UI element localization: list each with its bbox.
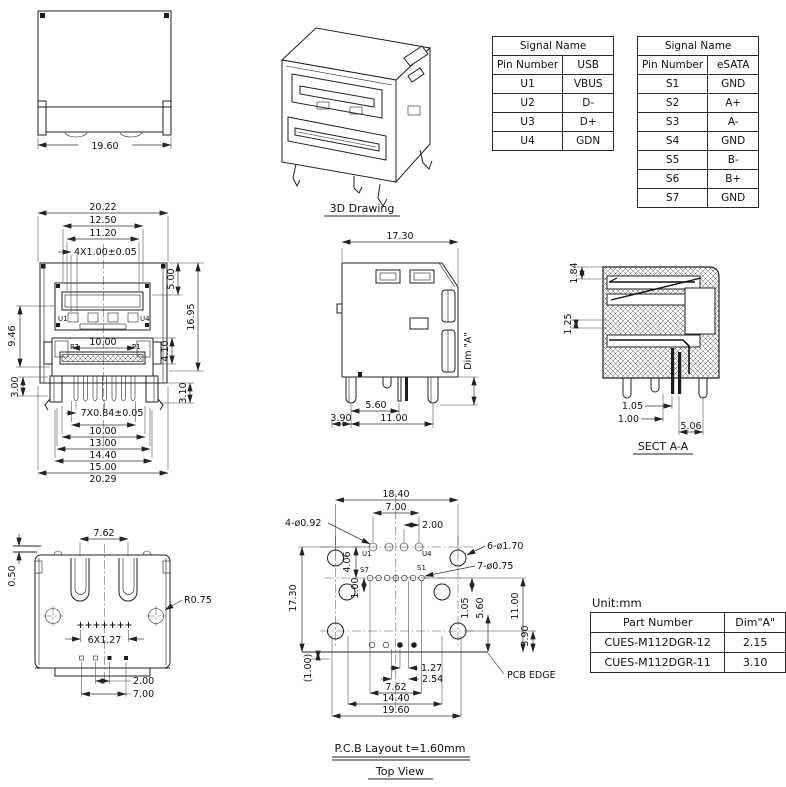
dim-105-pcb: 1.05 bbox=[460, 597, 471, 618]
dim-100-sect: 1.00 bbox=[618, 414, 639, 425]
sect-label: SECT A-A bbox=[633, 440, 693, 454]
dim-762-pcb: 7.62 bbox=[385, 682, 406, 693]
dim-1440: 14.40 bbox=[89, 450, 116, 461]
label-7-holes: 7-ø0.75 bbox=[477, 561, 513, 572]
engineering-drawing-sheet: 19.60 3D D bbox=[0, 0, 786, 787]
top-view: 19.60 bbox=[20, 3, 220, 155]
label-6-holes: 6-ø1.70 bbox=[487, 541, 523, 552]
part-number-header: Part Number bbox=[591, 613, 725, 633]
usb-pin-u1-label: U1 bbox=[58, 315, 68, 323]
pcb-layout-caption: P.C.B Layout t=1.60mm bbox=[335, 742, 466, 755]
table-row: S4 GND bbox=[638, 132, 759, 151]
rear-body bbox=[13, 546, 170, 676]
dim-310: 3.10 bbox=[178, 382, 189, 403]
table-row: U4 GDN bbox=[493, 132, 614, 151]
dim-254: 2.54 bbox=[422, 674, 443, 685]
usb-table-title: Signal Name bbox=[493, 37, 614, 56]
dim-390-side: 3.90 bbox=[330, 413, 351, 424]
dim-1100-side: 11.00 bbox=[380, 413, 407, 424]
dim-406: 4.06 bbox=[342, 551, 353, 572]
dim-1960-pcb: 19.60 bbox=[382, 705, 409, 716]
pin-cell: U2 bbox=[493, 94, 563, 113]
pin-cell: U3 bbox=[493, 113, 563, 132]
side-body bbox=[337, 263, 458, 403]
dim-a-cell: 3.10 bbox=[725, 653, 786, 673]
pin-cell: U1 bbox=[493, 75, 563, 94]
sig-cell: A- bbox=[708, 113, 759, 132]
pin-cell: S7 bbox=[638, 189, 708, 208]
part-number-cell: CUES-M112DGR-11 bbox=[591, 653, 725, 673]
pcb-s1-label: S1 bbox=[417, 564, 426, 572]
esata-pin-p1-label: P1 bbox=[132, 343, 141, 351]
top-view-caption: Top View bbox=[375, 765, 424, 778]
pcb-u1-label: U1 bbox=[362, 550, 372, 558]
front-left-dims: 9.46 3.00 bbox=[8, 306, 54, 398]
dim-2029: 20.29 bbox=[89, 474, 116, 484]
dim-2022: 20.22 bbox=[89, 202, 116, 213]
pcb-left-dims: 17.30 (1.00) 4.06 1.00 bbox=[288, 547, 368, 682]
usb-pin-u4-label: U4 bbox=[140, 315, 150, 323]
dim-r075: R0.75 bbox=[184, 595, 212, 606]
front-view: U1 U4 P7 P1 bbox=[8, 196, 240, 484]
pin-cell: S1 bbox=[638, 75, 708, 94]
dim-300: 3.00 bbox=[10, 376, 21, 397]
top-view-body bbox=[38, 11, 171, 137]
sig-cell: GND bbox=[708, 132, 759, 151]
table-row: CUES-M112DGR-12 2.15 bbox=[591, 633, 786, 653]
dim-a-label: Dim "A" bbox=[463, 332, 474, 369]
dim-1960: 19.60 bbox=[91, 141, 118, 152]
front-bottom-dims: 7X0.84±0.05 10.00 13.00 14.40 15.00 20.2… bbox=[38, 386, 168, 484]
top-view-dim: 19.60 bbox=[38, 137, 171, 152]
table-row: S1 GND bbox=[638, 75, 759, 94]
sect-left-dims: 1.84 1.25 bbox=[563, 262, 607, 334]
pin-cell: U4 bbox=[493, 132, 563, 151]
dim-6x127: 6X1.27 bbox=[88, 635, 122, 646]
pin-cell: S4 bbox=[638, 132, 708, 151]
dim-560-side: 5.60 bbox=[365, 400, 386, 411]
rear-dims: 7.62 0.50 R0.75 6X1.27 2.00 7.00 bbox=[7, 528, 212, 700]
front-top-dims: 20.22 12.50 11.20 4X1.00±0.05 bbox=[38, 202, 168, 312]
dim-560-pcb: 5.60 bbox=[475, 597, 486, 618]
3d-label: 3D Drawing bbox=[324, 202, 400, 216]
side-bottom-dims: 5.60 11.00 3.90 bbox=[330, 400, 433, 428]
section-view: 1.84 1.25 1.05 1.00 5.06 SECT A-A bbox=[563, 236, 785, 458]
dim-7x084: 7X0.84±0.05 bbox=[81, 408, 144, 419]
dim-184: 1.84 bbox=[569, 262, 580, 283]
table-row: S3 A- bbox=[638, 113, 759, 132]
table-row: U3 D+ bbox=[493, 113, 614, 132]
part-number-table: Part Number Dim"A" CUES-M112DGR-12 2.15 … bbox=[590, 612, 786, 673]
dim-1000-mid: 10.00 bbox=[89, 337, 116, 348]
pcb-edge-label: PCB EDGE bbox=[507, 670, 556, 681]
dim-127: 1.27 bbox=[421, 663, 442, 674]
pcb-captions: P.C.B Layout t=1.60mm Top View bbox=[332, 742, 470, 779]
iso-body bbox=[282, 28, 432, 206]
front-mid-dim: 10.00 bbox=[72, 337, 136, 348]
pcb-top-dims: 18.40 7.00 2.00 4-ø0.92 6-ø1.70 7-ø0.75 bbox=[285, 489, 523, 576]
table-row: CUES-M112DGR-11 3.10 bbox=[591, 653, 786, 673]
dim-1500: 15.00 bbox=[89, 462, 116, 473]
front-right-dims: 5.00 16.95 4.10 3.10 bbox=[152, 263, 204, 404]
sig-cell: GDN bbox=[563, 132, 614, 151]
esata-col-pin: Pin Number bbox=[638, 56, 708, 75]
dim-105-sect: 1.05 bbox=[622, 401, 643, 412]
sig-cell: D- bbox=[563, 94, 614, 113]
pcb-bottom-dims: 1.27 2.54 7.62 14.40 19.60 bbox=[332, 581, 461, 716]
dim-200-pcb: 2.00 bbox=[422, 520, 443, 531]
sect-body bbox=[603, 267, 719, 398]
dim-a-header: Dim"A" bbox=[725, 613, 786, 633]
sig-cell: A+ bbox=[708, 94, 759, 113]
dim-1695: 16.95 bbox=[186, 303, 197, 330]
dim-410: 4.10 bbox=[160, 340, 171, 361]
sect-aa-label: SECT A-A bbox=[638, 440, 689, 453]
esata-table-title: Signal Name bbox=[638, 37, 759, 56]
dim-762-rear: 7.62 bbox=[93, 528, 114, 539]
dim-200-rear: 2.00 bbox=[133, 676, 154, 687]
table-row: U2 D- bbox=[493, 94, 614, 113]
usb-col-sig: USB bbox=[563, 56, 614, 75]
sig-cell: D+ bbox=[563, 113, 614, 132]
table-row: S6 B+ bbox=[638, 170, 759, 189]
unit-label: Unit:mm bbox=[592, 596, 786, 610]
dim-1000-bot: 10.00 bbox=[89, 426, 116, 437]
pcb-s7-label: S7 bbox=[360, 566, 369, 574]
esata-signal-table: Signal Name Pin Number eSATA S1 GND S2 A… bbox=[637, 36, 759, 208]
pin-cell: S3 bbox=[638, 113, 708, 132]
sig-cell: B- bbox=[708, 151, 759, 170]
dim-1440-pcb: 14.40 bbox=[382, 693, 409, 704]
dim-1250: 12.50 bbox=[89, 215, 116, 226]
pcb-right-dims: 1.05 5.60 11.00 3.90 bbox=[425, 578, 536, 652]
pin-cell: S2 bbox=[638, 94, 708, 113]
dim-1730-side: 17.30 bbox=[386, 231, 413, 242]
part-number-cell: CUES-M112DGR-12 bbox=[591, 633, 725, 653]
pcb-u4-label: U4 bbox=[422, 550, 432, 558]
sig-cell: GND bbox=[708, 189, 759, 208]
sig-cell: VBUS bbox=[563, 75, 614, 94]
pin-cell: S6 bbox=[638, 170, 708, 189]
dim-1300: 13.00 bbox=[89, 438, 116, 449]
dim-500: 5.00 bbox=[166, 268, 177, 289]
table-row: S5 B- bbox=[638, 151, 759, 170]
dim-1730-pcb: 17.30 bbox=[288, 584, 299, 611]
esata-col-sig: eSATA bbox=[708, 56, 759, 75]
dim-506: 5.06 bbox=[680, 421, 701, 432]
side-view: 17.30 Dim "A" 5.60 11.00 3.90 bbox=[328, 226, 513, 438]
part-number-block: Unit:mm Part Number Dim"A" CUES-M112DGR-… bbox=[590, 596, 786, 673]
dim-700-rear: 7.00 bbox=[133, 689, 154, 700]
pcb-layout: U1 U4 S7 S1 18.40 7.00 2.00 4-ø0.92 6-ø1… bbox=[280, 486, 565, 786]
dim-1100-pcb: 11.00 bbox=[510, 592, 521, 619]
dim-100-pcb: 1.00 bbox=[350, 577, 361, 598]
table-row: S2 A+ bbox=[638, 94, 759, 113]
esata-pin-p7-label: P7 bbox=[70, 343, 79, 351]
usb-signal-table: Signal Name Pin Number USB U1 VBUS U2 D-… bbox=[492, 36, 614, 151]
table-row: S7 GND bbox=[638, 189, 759, 208]
dim-a-cell: 2.15 bbox=[725, 633, 786, 653]
dim-1840: 18.40 bbox=[382, 489, 409, 500]
sig-cell: B+ bbox=[708, 170, 759, 189]
dim-1120: 11.20 bbox=[89, 228, 116, 239]
rear-view: 7.62 0.50 R0.75 6X1.27 2.00 7.00 bbox=[5, 506, 220, 711]
table-row: U1 VBUS bbox=[493, 75, 614, 94]
dim-100-ref: (1.00) bbox=[303, 654, 314, 683]
pin-cell: S5 bbox=[638, 151, 708, 170]
dim-700-pcb: 7.00 bbox=[385, 502, 406, 513]
dim-125: 1.25 bbox=[563, 313, 574, 334]
side-dim-a: Dim "A" bbox=[440, 332, 478, 405]
label-4-holes: 4-ø0.92 bbox=[285, 518, 321, 529]
dim-946: 9.46 bbox=[8, 325, 18, 346]
3d-drawing-label: 3D Drawing bbox=[330, 202, 395, 215]
dim-390-pcb: 3.90 bbox=[520, 625, 531, 646]
sect-bottom-dims: 1.05 1.00 5.06 bbox=[618, 394, 703, 435]
sig-cell: GND bbox=[708, 75, 759, 94]
dim-050: 0.50 bbox=[7, 565, 18, 586]
usb-col-pin: Pin Number bbox=[493, 56, 563, 75]
dim-4x100: 4X1.00±0.05 bbox=[74, 247, 137, 258]
3d-drawing: 3D Drawing bbox=[262, 14, 467, 224]
